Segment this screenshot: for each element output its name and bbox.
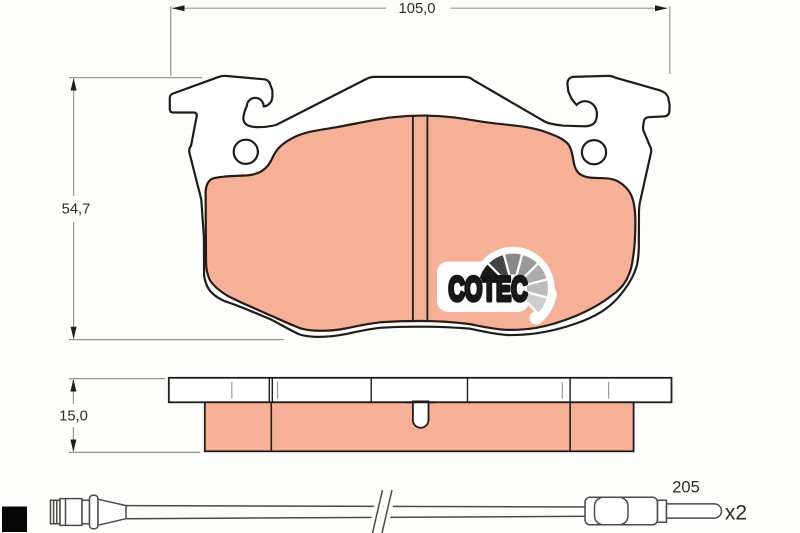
svg-text:15,0: 15,0 — [59, 409, 88, 425]
svg-text:105,0: 105,0 — [398, 1, 435, 17]
svg-text:54,7: 54,7 — [62, 202, 91, 218]
svg-text:205: 205 — [672, 479, 700, 497]
svg-text:x2: x2 — [725, 502, 747, 525]
svg-text:COTEC: COTEC — [449, 271, 528, 309]
